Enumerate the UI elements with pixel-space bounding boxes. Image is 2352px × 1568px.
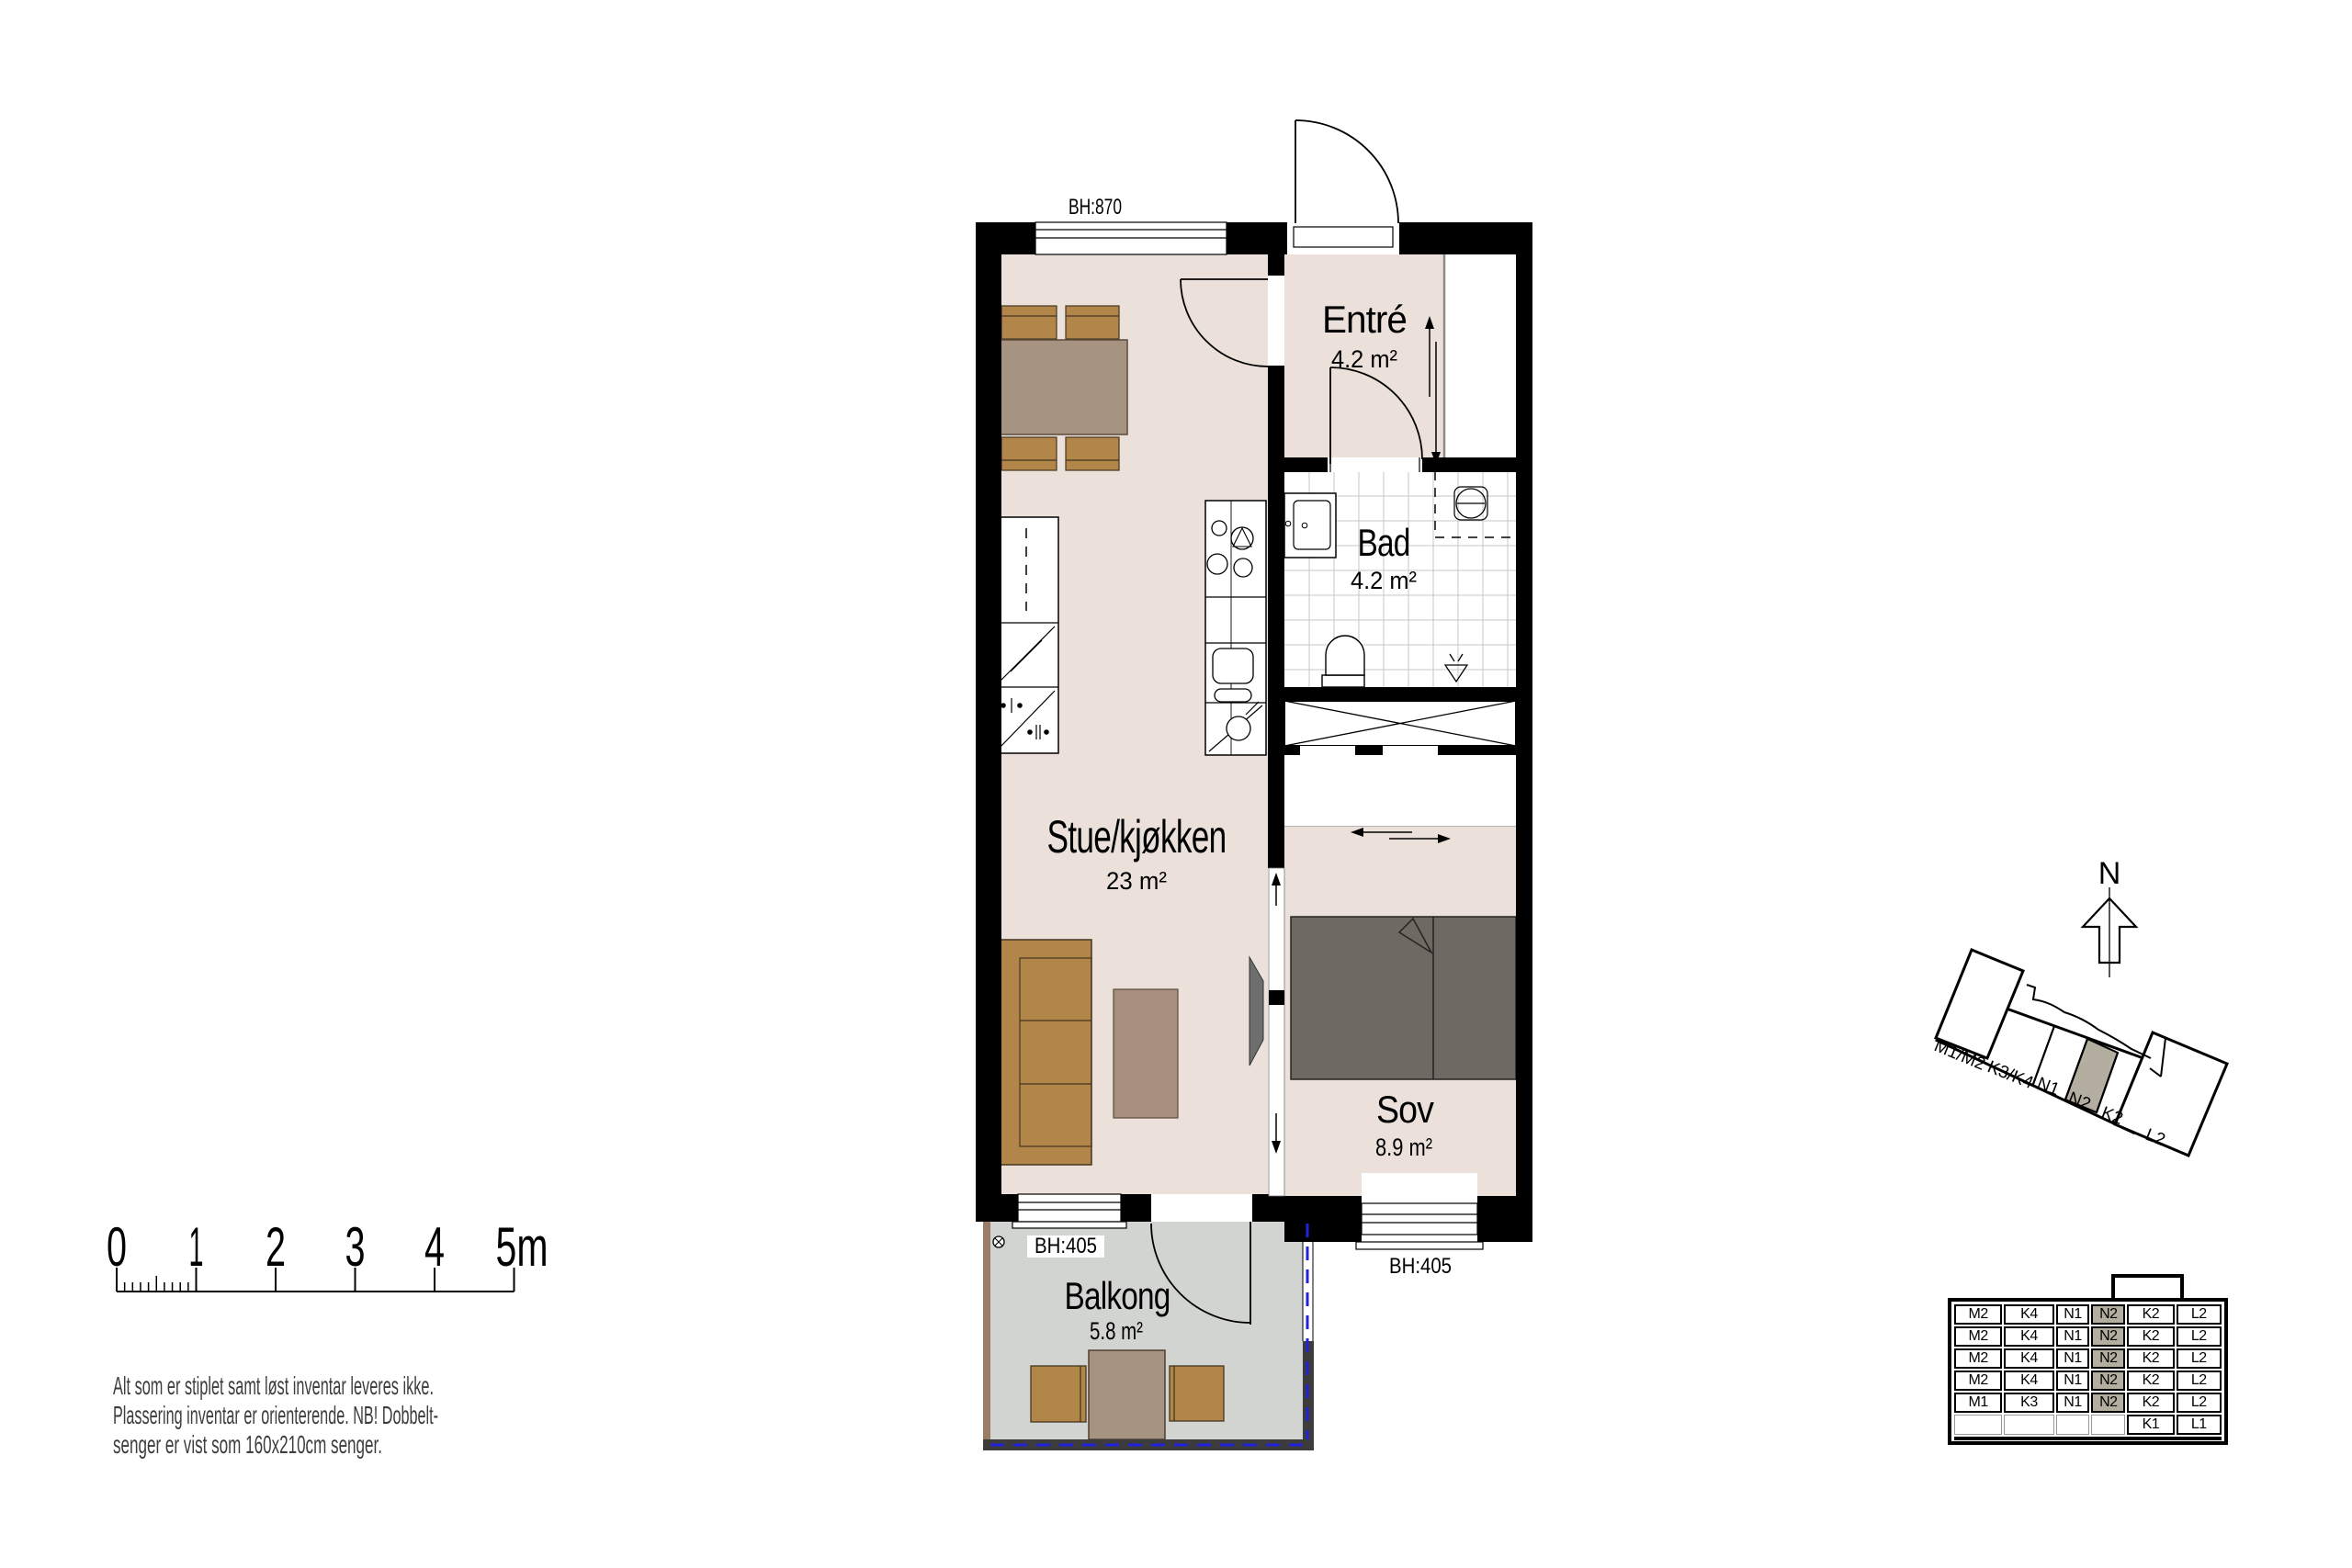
label-bad-area: 4.2 m² [1351,567,1417,594]
wall [1399,222,1532,254]
schedule-cell: L2 [2177,1348,2222,1369]
schedule-cell-highlight: N2 [2091,1393,2125,1413]
schedule-cell: N1 [2056,1371,2090,1391]
label-balkong-area: 5.8 m² [1090,1317,1143,1345]
dining-chair [1066,306,1119,339]
label-bh405-sov: BH:405 [1389,1254,1452,1279]
wall [1252,1194,1284,1222]
dining-chair [1066,437,1119,470]
scale-minor-ticks [125,1276,188,1292]
window-sov-bh405 [1356,1203,1483,1249]
schedule-ground-band [1954,1437,2222,1440]
coffee-table [1114,989,1178,1118]
disclaimer-line2: Plassering inventar er orienterende. NB!… [113,1401,438,1429]
window-top-bh870 [1035,222,1227,254]
disclaimer-line3: senger er vist som 160x210cm senger. [113,1430,382,1459]
wall-left [976,222,1001,1222]
scale-4: 4 [424,1216,445,1278]
label-sov: Sov [1376,1088,1434,1131]
wall [1284,1196,1362,1242]
dining-table [997,340,1127,434]
schedule-cell: K2 [2127,1326,2174,1347]
schedule-cell: M2 [1954,1304,2002,1325]
scale-0: 0 [107,1216,127,1278]
schedule-cell: M2 [1954,1348,2002,1369]
wall-center [1268,366,1284,868]
balcony-door-opening [1151,1194,1252,1222]
entrance-opening [1287,222,1399,254]
scale-bar: 0 1 2 3 4 5m [107,1216,548,1292]
north-label: N [2098,856,2121,891]
sofa [995,940,1091,1165]
schedule-cell: N1 [2056,1348,2090,1369]
schedule-cell-empty [2004,1415,2053,1435]
label-entre: Entré [1322,298,1407,341]
floorplan-page: BH:870 Entré 4.2 m² Bad 4.2 m² Stue/kjøk… [0,0,2352,1568]
disclaimer: Alt som er stiplet samt løst inventar le… [113,1371,438,1459]
shaft-floor [1444,254,1516,457]
disclaimer-line1: Alt som er stiplet samt løst inventar le… [113,1371,434,1400]
entrance-door [1295,120,1398,223]
label-bad: Bad [1358,521,1410,564]
schedule-cell: K4 [2004,1304,2053,1325]
schedule-cell: K4 [2004,1371,2053,1391]
label-sov-area: 8.9 m² [1375,1134,1432,1161]
sov-window-recess [1362,1173,1477,1197]
schedule-cell: L1 [2177,1415,2222,1435]
schedule-cell-empty [2056,1415,2090,1435]
schedule-cell-highlight: N2 [2091,1371,2125,1391]
scale-3: 3 [345,1216,366,1278]
drain-symbol [993,1236,1004,1247]
balcony-chair [1031,1366,1086,1422]
schedule-cell: K2 [2127,1348,2174,1369]
balcony-side-wall [983,1222,990,1449]
shaft-closet [1284,701,1516,746]
dining-chair [1001,437,1057,470]
kitchen-sink [1213,649,1253,702]
wardrobe-area [1284,755,1516,827]
scale-major-ticks [117,1268,514,1292]
sliding-door [1269,868,1284,1196]
balcony-chair [1170,1366,1224,1421]
unit-schedule: M2 K4 N1 N2 K2 L2 M2 K4 N1 N2 K2 L2 M2 K… [1948,1298,2228,1445]
bad-door-opening [1328,457,1422,472]
scale-5m: 5m [496,1216,548,1278]
schedule-cell: N1 [2056,1393,2090,1413]
schedule-cell: L2 [2177,1393,2222,1413]
schedule-cell: L2 [2177,1326,2222,1347]
schedule-cell: K2 [2127,1371,2174,1391]
schedule-cell: K4 [2004,1348,2053,1369]
schedule-cell: M2 [1954,1371,2002,1391]
label-stue: Stue/kjøkken [1047,811,1227,863]
schedule-cell-empty [2091,1415,2125,1435]
schedule-cell: K3 [2004,1393,2053,1413]
schedule-cell: K1 [2127,1415,2174,1435]
wall [1268,687,1532,701]
schedule-cell: K4 [2004,1326,2053,1347]
schedule-cell: L2 [2177,1304,2222,1325]
bed [1291,917,1516,1079]
schedule-cell: N1 [2056,1326,2090,1347]
label-balkong: Balkong [1065,1274,1170,1317]
wall [976,1194,1018,1222]
entre-door-opening [1268,276,1284,366]
north-arrow: N [2083,856,2136,977]
wall-right [1516,222,1532,1242]
site-plan: M1/M2 K3/K4 N1 N2 K2 L2 [1931,950,2227,1156]
site-block-l2 [2115,1032,2227,1156]
window-stue-bh405 [1012,1194,1126,1228]
label-entre-area: 4.2 m² [1331,345,1397,373]
schedule-cell-empty [1954,1415,2002,1435]
scale-1: 1 [189,1216,204,1278]
schedule-cell: M1 [1954,1393,2002,1413]
label-bh405-balcony: BH:405 [1035,1234,1097,1258]
balcony-table [1089,1350,1165,1439]
dining-chair [1001,306,1057,339]
wall-center [1268,222,1284,276]
schedule-cell: K2 [2127,1393,2174,1413]
schedule-cell: L2 [2177,1371,2222,1391]
wall [1477,1196,1532,1242]
schedule-cell-highlight: N2 [2091,1326,2125,1347]
schedule-cell: M2 [1954,1326,2002,1347]
scale-2: 2 [266,1216,286,1278]
kitchen-left-counter [994,517,1058,753]
label-stue-area: 23 m² [1106,867,1167,895]
schedule-cell-highlight: N2 [2091,1348,2125,1369]
kitchen-right-counter [1205,501,1266,755]
wall [1121,1194,1151,1222]
label-bh870: BH:870 [1069,195,1122,220]
schedule-cell-highlight: N2 [2091,1304,2125,1325]
bathroom-sink [1284,493,1336,558]
schedule-cell: K2 [2127,1304,2174,1325]
schedule-cell: N1 [2056,1304,2090,1325]
